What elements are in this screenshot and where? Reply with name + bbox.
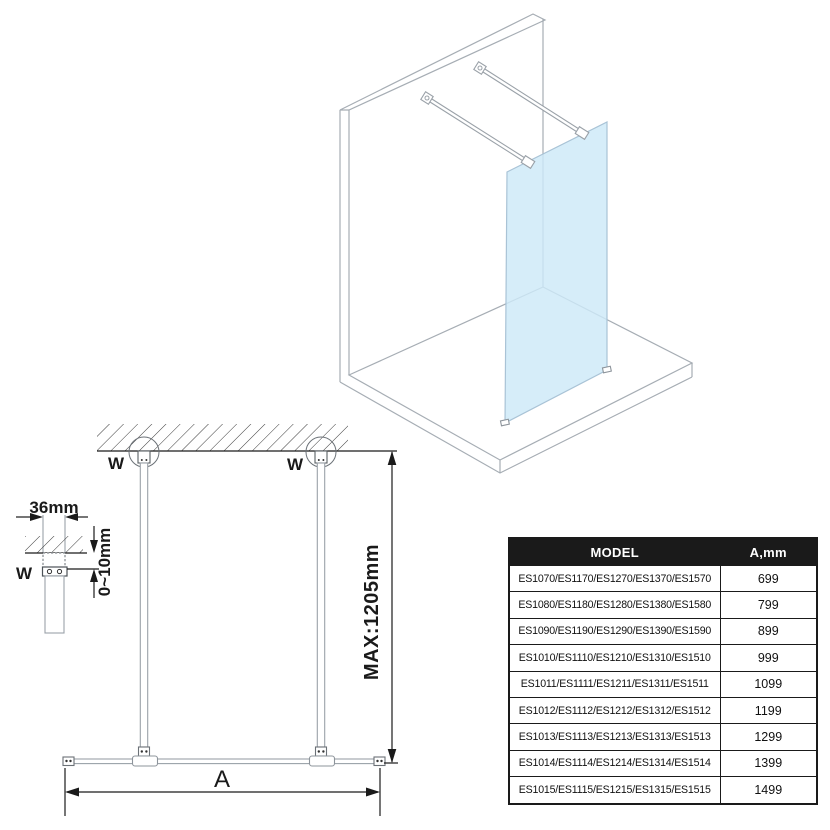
model-cell: ES1015/ES1115/ES1215/ES1315/ES1515 — [509, 777, 720, 804]
dimension-column-header: A,mm — [720, 538, 817, 566]
table-row: ES1014/ES1114/ES1214/ES1314/ES1514 1399 — [509, 750, 817, 776]
wall-mount-label-detail: W — [16, 564, 33, 583]
support-bar-near — [421, 92, 535, 169]
model-cell: ES1012/ES1112/ES1212/ES1312/ES1512 — [509, 697, 720, 723]
dimension-span-label: A — [214, 766, 230, 793]
bracket-detail: 36mm W 0~10mm — [16, 498, 114, 633]
bottom-bar — [63, 747, 385, 766]
page: { "drawing": { "labels": { "wall_mount":… — [0, 0, 830, 830]
bar-end-cap-left — [63, 757, 74, 766]
value-cell: 1099 — [720, 671, 817, 697]
value-cell: 699 — [720, 566, 817, 592]
table-row: ES1011/ES1111/ES1211/ES1311/ES1511 1099 — [509, 671, 817, 697]
model-column-header: MODEL — [509, 538, 720, 566]
value-cell: 899 — [720, 618, 817, 644]
table-row: ES1015/ES1115/ES1215/ES1315/ES1515 1499 — [509, 777, 817, 804]
table-row: ES1090/ES1190/ES1290/ES1390/ES1590 899 — [509, 618, 817, 644]
table-row: ES1013/ES1113/ES1213/ES1313/ES1513 1299 — [509, 724, 817, 750]
model-cell: ES1080/ES1180/ES1280/ES1380/ES1580 — [509, 592, 720, 618]
value-cell: 1199 — [720, 697, 817, 723]
value-cell: 999 — [720, 645, 817, 671]
table-row: ES1010/ES1110/ES1210/ES1310/ES1510 999 — [509, 645, 817, 671]
dimension-height-label: MAX:1205mm — [361, 544, 383, 680]
left-rod — [129, 437, 159, 747]
right-rod — [306, 437, 336, 747]
isometric-view — [330, 10, 810, 490]
value-cell: 1499 — [720, 777, 817, 804]
wall-mount-label-left: W — [108, 454, 125, 473]
model-cell: ES1013/ES1113/ES1213/ES1313/ES1513 — [509, 724, 720, 750]
value-cell: 799 — [720, 592, 817, 618]
model-cell: ES1070/ES1170/ES1270/ES1370/ES1570 — [509, 566, 720, 592]
wall-mount-label-right: W — [287, 455, 304, 474]
model-table: MODEL A,mm ES1070/ES1170/ES1270/ES1370/E… — [508, 537, 818, 805]
dimension-gap-label: 0~10mm — [95, 528, 114, 597]
bar-end-cap-right — [374, 757, 385, 766]
dimension-height — [384, 451, 398, 763]
value-cell: 1299 — [720, 724, 817, 750]
support-bar-far — [474, 62, 589, 140]
model-cell: ES1010/ES1110/ES1210/ES1310/ES1510 — [509, 645, 720, 671]
table-row: ES1012/ES1112/ES1212/ES1312/ES1512 1199 — [509, 697, 817, 723]
table-row: ES1070/ES1170/ES1270/ES1370/ES1570 699 — [509, 566, 817, 592]
model-cell: ES1014/ES1114/ES1214/ES1314/ES1514 — [509, 750, 720, 776]
front-view: W W A MAX:1205mm — [0, 420, 412, 830]
value-cell: 1399 — [720, 750, 817, 776]
table-header-row: MODEL A,mm — [509, 538, 817, 566]
model-cell: ES1011/ES1111/ES1211/ES1311/ES1511 — [509, 671, 720, 697]
table-row: ES1080/ES1180/ES1280/ES1380/ES1580 799 — [509, 592, 817, 618]
dimension-width-label: 36mm — [29, 498, 78, 517]
glass-panel — [505, 122, 607, 423]
model-cell: ES1090/ES1190/ES1290/ES1390/ES1590 — [509, 618, 720, 644]
